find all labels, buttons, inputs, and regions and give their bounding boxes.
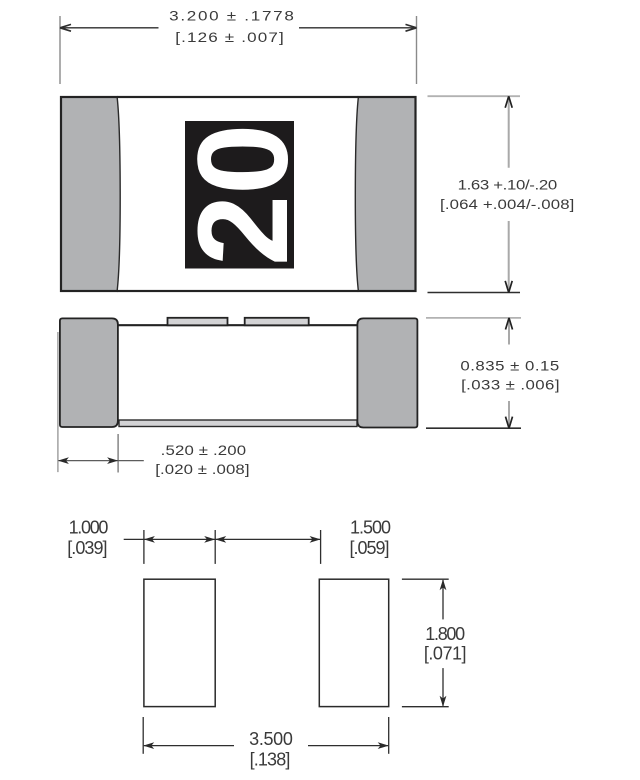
svg-text:[.138]: [.138] (250, 750, 291, 770)
svg-text:1.500: 1.500 (350, 518, 391, 538)
svg-text:[.020 ± .008]: [.020 ± .008] (155, 462, 249, 477)
svg-text:20: 20 (172, 124, 315, 266)
svg-text:3.500: 3.500 (249, 729, 293, 749)
svg-text:[.071]: [.071] (424, 644, 467, 664)
svg-text:.520 ± .200: .520 ± .200 (161, 443, 246, 458)
svg-text:[.033 ± .006]: [.033 ± .006] (461, 378, 559, 393)
svg-text:[.064 +.004/-.008]: [.064 +.004/-.008] (440, 197, 574, 212)
svg-text:[.126 ± .007]: [.126 ± .007] (175, 30, 283, 45)
svg-text:3.200 ± .1778: 3.200 ± .1778 (169, 9, 294, 24)
svg-text:1.000: 1.000 (69, 518, 109, 538)
svg-text:1.63 +.10/-.20: 1.63 +.10/-.20 (458, 178, 558, 193)
svg-text:[.039]: [.039] (67, 538, 107, 558)
svg-text:0.835 ± 0.15: 0.835 ± 0.15 (460, 359, 559, 374)
svg-text:1.800: 1.800 (425, 624, 465, 644)
svg-text:[.059]: [.059] (350, 538, 390, 558)
